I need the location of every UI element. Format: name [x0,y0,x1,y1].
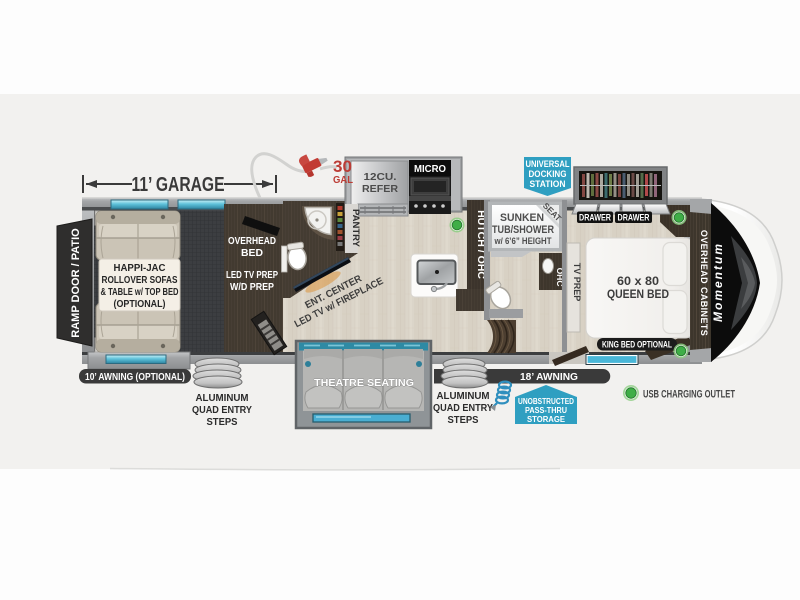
svg-text:STEPS: STEPS [207,416,238,428]
svg-text:DRAWER: DRAWER [579,213,611,224]
svg-text:60 x 80: 60 x 80 [617,276,659,288]
svg-text:QUAD ENTRY: QUAD ENTRY [192,404,252,416]
svg-text:HAPPI-JAC: HAPPI-JAC [114,263,166,274]
svg-text:ROLLOVER SOFAS: ROLLOVER SOFAS [102,275,178,286]
svg-text:ALUMINUM: ALUMINUM [196,392,249,404]
svg-text:10’ AWNING (OPTIONAL): 10’ AWNING (OPTIONAL) [85,372,185,383]
svg-text:18’ AWNING: 18’ AWNING [520,372,578,383]
svg-text:TUB/SHOWER: TUB/SHOWER [492,224,554,236]
svg-text:Momentum: Momentum [711,242,725,322]
svg-text:KING BED OPTIONAL: KING BED OPTIONAL [602,340,672,350]
svg-text:ALUMINUM: ALUMINUM [437,390,490,402]
svg-text:QUEEN BED: QUEEN BED [607,289,669,301]
svg-text:OVERHEAD CABINETS: OVERHEAD CABINETS [699,230,709,336]
svg-text:DRAWER: DRAWER [618,213,650,224]
svg-text:(OPTIONAL): (OPTIONAL) [114,299,166,310]
svg-text:SUNKEN: SUNKEN [500,212,544,224]
svg-text:STORAGE: STORAGE [527,414,565,424]
svg-text:BED: BED [241,248,263,259]
svg-text:STEPS: STEPS [448,414,479,426]
svg-text:OVERHEAD: OVERHEAD [228,236,276,247]
svg-text:W/D PREP: W/D PREP [230,282,274,293]
svg-text:& TABLE w/ TOP BED: & TABLE w/ TOP BED [101,287,179,298]
svg-text:w/ 6’6” HEIGHT: w/ 6’6” HEIGHT [494,236,552,246]
svg-text:LED TV PREP: LED TV PREP [226,270,278,281]
svg-text:GAL: GAL [333,174,354,186]
svg-text:THEATRE SEATING: THEATRE SEATING [314,377,414,389]
svg-text:RAMP DOOR / PATIO: RAMP DOOR / PATIO [70,228,82,338]
svg-text:12CU.: 12CU. [364,171,397,183]
svg-text:STATION: STATION [530,179,566,189]
svg-text:11’ GARAGE: 11’ GARAGE [132,174,225,196]
svg-text:UNIVERSAL: UNIVERSAL [526,159,570,169]
svg-text:USB CHARGING OUTLET: USB CHARGING OUTLET [643,389,735,401]
svg-text:PANTRY: PANTRY [350,209,361,248]
svg-text:DOCKING: DOCKING [529,169,567,179]
svg-text:MICRO: MICRO [414,164,446,175]
svg-text:TV PREP: TV PREP [572,263,582,302]
svg-text:QUAD ENTRY: QUAD ENTRY [433,402,493,414]
svg-text:REFER: REFER [362,183,398,195]
